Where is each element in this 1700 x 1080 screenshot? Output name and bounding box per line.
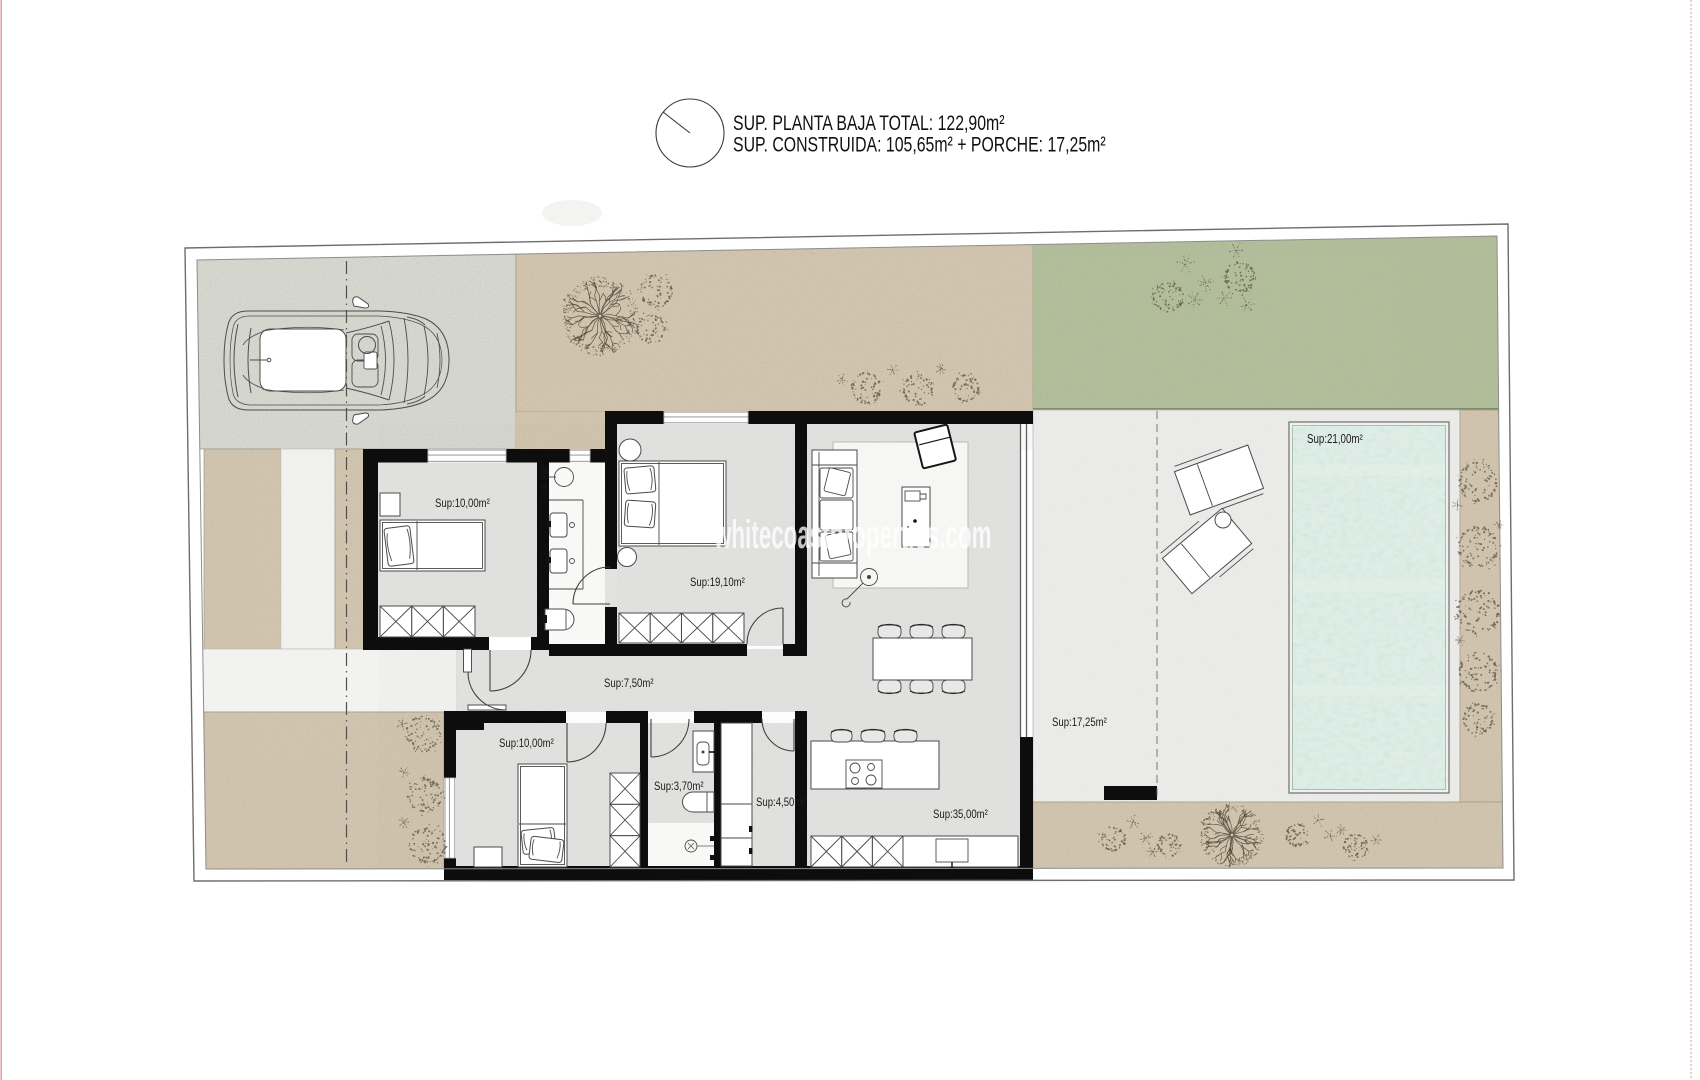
svg-text:Sup:21,00m²: Sup:21,00m²: [1307, 433, 1363, 446]
svg-text:Sup:3,70m²: Sup:3,70m²: [654, 780, 704, 793]
svg-text:SUP. PLANTA BAJA TOTAL: 122,90: SUP. PLANTA BAJA TOTAL: 122,90m²: [733, 111, 1005, 135]
svg-text:Sup:10,00m²: Sup:10,00m²: [499, 737, 554, 750]
svg-text:Sup:10,00m²: Sup:10,00m²: [435, 497, 490, 510]
svg-text:Sup:4,50m²: Sup:4,50m²: [756, 796, 806, 809]
svg-text:Sup:7,50m²: Sup:7,50m²: [604, 677, 654, 690]
svg-text:whitecoastproperties.com: whitecoastproperties.com: [713, 512, 991, 556]
svg-text:SUP. CONSTRUIDA: 105,65m² + PO: SUP. CONSTRUIDA: 105,65m² + PORCHE: 17,2…: [733, 132, 1106, 156]
svg-text:Sup:35,00m²: Sup:35,00m²: [933, 808, 988, 821]
svg-text:Sup:19,10m²: Sup:19,10m²: [690, 576, 745, 589]
svg-text:Sup:17,25m²: Sup:17,25m²: [1052, 716, 1107, 729]
